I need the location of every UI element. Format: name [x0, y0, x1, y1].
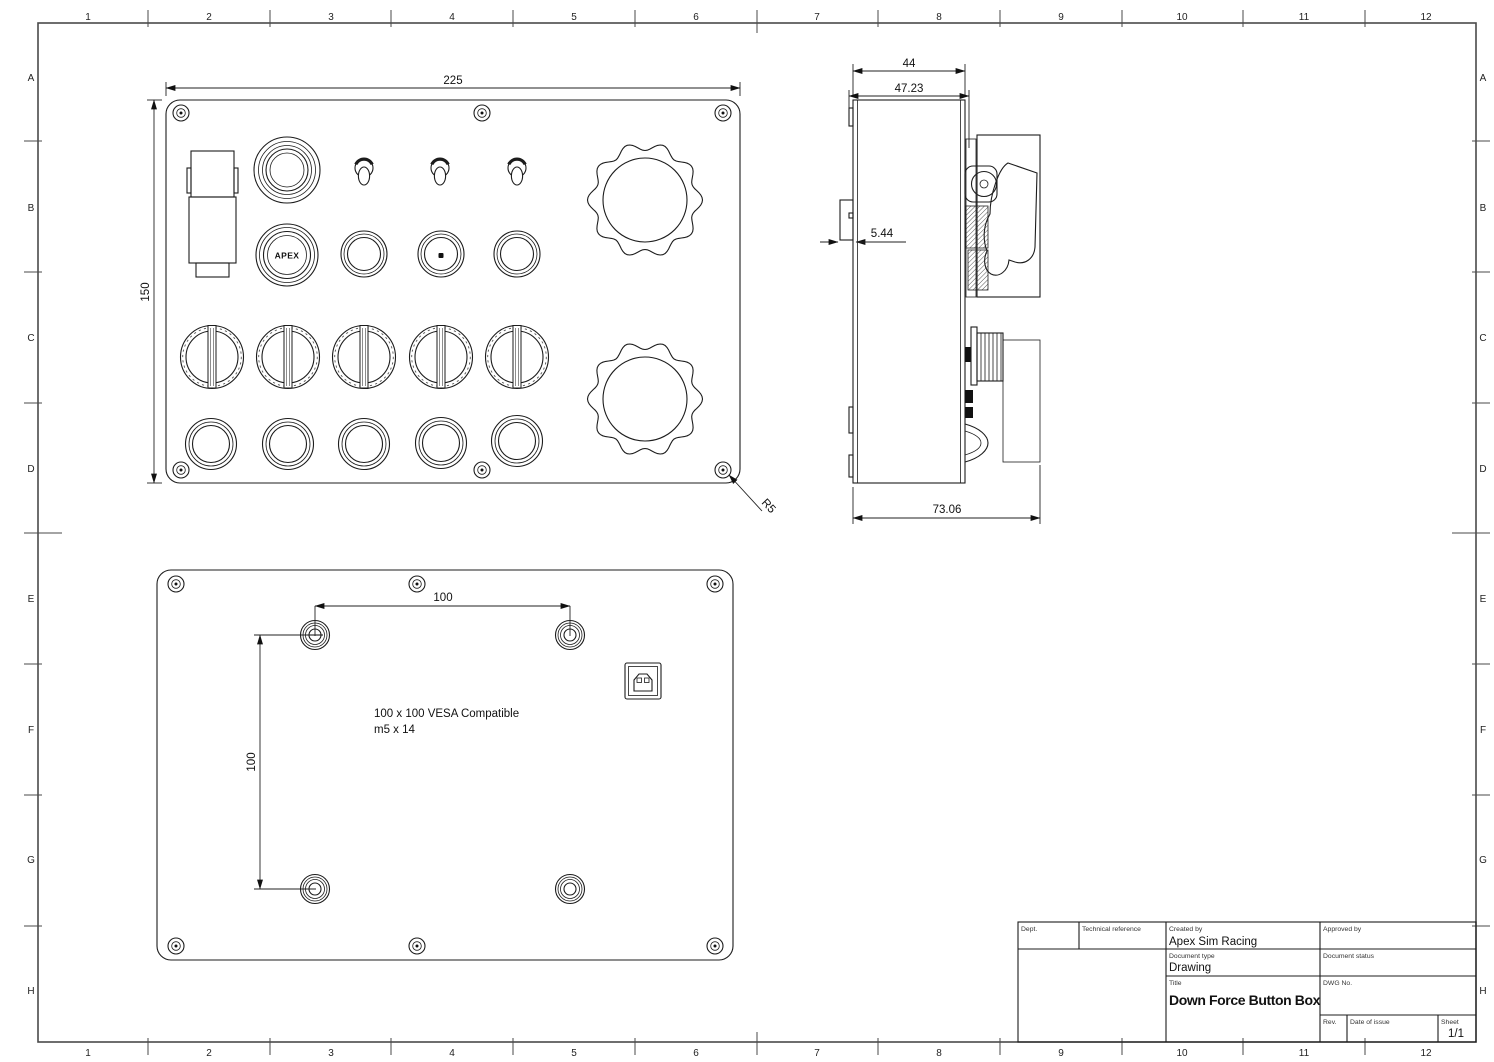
dim-side-guard: 5.44: [820, 228, 906, 242]
title-block-label-sheet: Sheet: [1441, 1019, 1459, 1026]
title-block-label-document-status: Document status: [1323, 953, 1375, 960]
side-face-detail: [965, 407, 973, 418]
drawing-frame: 1 2 3 4 5 6 7 8 9 10 11 12 1 2 3 4 5 6 7…: [24, 10, 1490, 1059]
grid-row-label: F: [28, 725, 34, 736]
grid-col-label: 8: [936, 12, 942, 23]
dim-vesa-h-label: 100: [433, 592, 452, 604]
push-button-icon: [494, 231, 540, 277]
side-knob-icon: [965, 327, 1040, 462]
back-panel-outline: [157, 570, 733, 960]
push-button-icon: [339, 419, 390, 470]
grid-row-label: D: [27, 464, 34, 475]
toggle-switch-icon: [508, 159, 526, 185]
grid-col-label: 1: [85, 12, 91, 23]
corner-screw-icon: [409, 938, 425, 954]
title-block-label-document-type: Document type: [1169, 953, 1215, 960]
grid-col-label: 8: [936, 1048, 942, 1059]
grid-col-label: 10: [1176, 12, 1188, 23]
title-block-created-by-value: Apex Sim Racing: [1169, 936, 1257, 948]
grid-col-label: 6: [693, 12, 699, 23]
push-button-icon: [263, 419, 314, 470]
corner-screw-icon: [173, 105, 189, 121]
grid-row-label: D: [1479, 464, 1486, 475]
grid-col-label: 3: [328, 1048, 334, 1059]
grid-col-label: 10: [1176, 1048, 1188, 1059]
dim-body-label: 44: [903, 58, 916, 70]
grid-ruler-ticks: [24, 10, 1490, 1055]
push-button-icon: [186, 419, 237, 470]
corner-screw-icon: [707, 576, 723, 592]
corner-screw-icon: [409, 576, 425, 592]
grid-col-label: 9: [1058, 1048, 1064, 1059]
vesa-note-line1: 100 x 100 VESA Compatible: [374, 708, 519, 720]
toggle-switch-icon: [431, 159, 449, 185]
title-block-document-type-value: Drawing: [1169, 962, 1211, 974]
dim-front-width: 225: [166, 75, 740, 96]
push-button-icon: [341, 231, 387, 277]
corner-screw-icon: [707, 938, 723, 954]
drawing-sheet: 1 2 3 4 5 6 7 8 9 10 11 12 1 2 3 4 5 6 7…: [0, 0, 1494, 1062]
switch-guard-icon: [187, 151, 238, 277]
grid-col-label: 7: [814, 1048, 820, 1059]
corner-radius-label: R5: [759, 497, 778, 516]
toggle-switch-icon: [355, 159, 373, 185]
dim-outer-label: 47.23: [895, 83, 924, 95]
grid-col-label: 4: [449, 1048, 455, 1059]
grid-row-label: C: [1479, 333, 1486, 344]
front-panel-outline: [166, 100, 740, 483]
title-block-label-title: Title: [1169, 980, 1182, 987]
grid-row-label: E: [28, 594, 35, 605]
grid-row-label: B: [1480, 203, 1487, 214]
grid-col-label: 12: [1420, 1048, 1432, 1059]
grid-col-label: 5: [571, 1048, 577, 1059]
title-block-label-dwg-no: DWG No.: [1323, 980, 1352, 987]
corner-screw-icon: [474, 105, 490, 121]
grid-row-label: H: [1479, 986, 1486, 997]
title-block-label-date-of-issue: Date of issue: [1350, 1019, 1390, 1026]
dim-height-label: 150: [140, 282, 152, 301]
dim-front-height: 150: [140, 100, 162, 483]
grid-col-label: 7: [814, 12, 820, 23]
switch-guard-side-icon: [840, 200, 853, 240]
rotary-selector-icon: [486, 326, 549, 389]
power-button-icon: [254, 137, 320, 203]
corner-screw-icon: [715, 105, 731, 121]
corner-screw-icon: [173, 462, 189, 478]
grid-col-label: 12: [1420, 12, 1432, 23]
grid-col-label: 11: [1299, 1048, 1310, 1059]
title-block-label-approved-by: Approved by: [1323, 926, 1362, 933]
title-block-title-value: Down Force Button Box: [1169, 992, 1321, 1008]
grid-labels: 1 2 3 4 5 6 7 8 9 10 11 12 1 2 3 4 5 6 7…: [27, 12, 1487, 1059]
corner-screw-icon: [715, 462, 731, 478]
side-view: 44 47.23 5.44 73.06: [820, 58, 1040, 524]
side-face-detail: [965, 390, 973, 403]
dim-side-total: 73.06: [853, 465, 1040, 524]
dim-width-label: 225: [443, 75, 462, 87]
grid-row-label: C: [27, 333, 34, 344]
push-button-icon: [492, 416, 543, 467]
title-block-label-created-by: Created by: [1169, 926, 1203, 933]
rotary-selector-icon: [333, 326, 396, 389]
corner-screw-icon: [168, 576, 184, 592]
rotary-selector-icon: [257, 326, 320, 389]
side-body-outline: [853, 100, 965, 483]
dim-vesa-vertical: 100: [246, 635, 316, 889]
title-block-label-technical-reference: Technical reference: [1082, 926, 1141, 933]
grid-row-label: A: [28, 73, 35, 84]
apex-button-label: APEX: [275, 251, 300, 261]
grid-col-label: 6: [693, 1048, 699, 1059]
push-button-icon: [416, 418, 467, 469]
grid-col-label: 2: [206, 1048, 212, 1059]
grid-col-label: 9: [1058, 12, 1064, 23]
grid-col-label: 5: [571, 12, 577, 23]
grid-row-label: F: [1480, 725, 1486, 736]
grid-col-label: 1: [85, 1048, 91, 1059]
missile-cover-side-icon: [965, 135, 1040, 297]
button-glyph-icon: [439, 253, 444, 258]
dim-vesa-horizontal: 100: [315, 592, 570, 636]
title-block-sheet-value: 1/1: [1448, 1028, 1464, 1040]
grid-row-label: H: [27, 986, 34, 997]
side-left-features: [840, 108, 853, 477]
rotary-selector-icon: [410, 326, 473, 389]
dim-vesa-v-label: 100: [246, 752, 258, 771]
usb-b-port-icon: [625, 663, 661, 699]
rotary-knob-icon: [588, 145, 703, 255]
corner-screw-icon: [474, 462, 490, 478]
grid-row-label: B: [28, 203, 35, 214]
grid-col-label: 11: [1299, 12, 1310, 23]
rotary-selector-icon: [181, 326, 244, 389]
front-view: APEX 225 150: [140, 75, 778, 516]
side-button-dome: [965, 424, 988, 462]
vesa-note-line2: m5 x 14: [374, 724, 416, 736]
grid-col-label: 2: [206, 12, 212, 23]
grid-row-label: E: [1480, 594, 1487, 605]
back-view: 100 x 100 VESA Compatible m5 x 14 100 10…: [157, 570, 733, 960]
corner-screw-icon: [168, 938, 184, 954]
grid-col-label: 4: [449, 12, 455, 23]
knob-projection-outline: [1003, 340, 1040, 462]
grid-col-label: 3: [328, 12, 334, 23]
dim-total-label: 73.06: [933, 504, 962, 516]
title-block: Dept. Technical reference Created by App…: [1018, 922, 1476, 1042]
title-block-label-dept: Dept.: [1021, 926, 1037, 933]
dim-side-outer: 47.23: [849, 83, 969, 148]
grid-row-label: A: [1480, 73, 1487, 84]
rotary-knob-icon: [588, 344, 703, 454]
vesa-hole-icon: [556, 875, 585, 904]
grid-row-label: G: [27, 855, 35, 866]
corner-radius-callout: R5: [729, 475, 778, 516]
grid-row-label: G: [1479, 855, 1487, 866]
dim-guard-label: 5.44: [871, 228, 894, 240]
title-block-label-rev: Rev.: [1323, 1019, 1337, 1026]
